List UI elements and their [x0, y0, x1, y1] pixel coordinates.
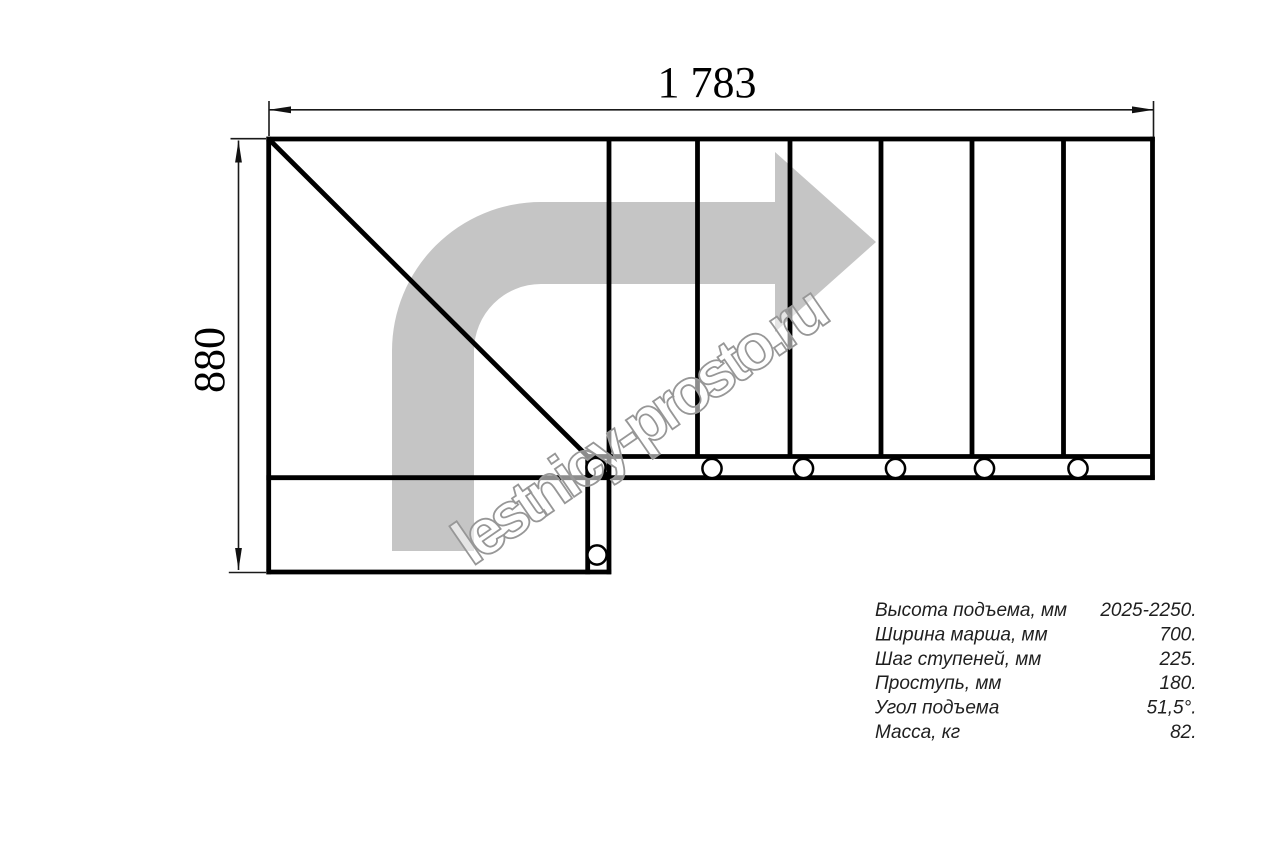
- svg-text:1 783: 1 783: [658, 58, 757, 107]
- svg-text:Ширина марша, мм: Ширина марша, мм: [875, 625, 1048, 646]
- svg-text:Угол подъема: Угол подъема: [874, 698, 999, 719]
- svg-text:880: 880: [185, 327, 234, 393]
- svg-text:700.: 700.: [1160, 625, 1197, 646]
- svg-text:82.: 82.: [1170, 722, 1196, 743]
- svg-text:Масса, кг: Масса, кг: [875, 722, 960, 743]
- svg-text:51,5°.: 51,5°.: [1147, 698, 1197, 719]
- svg-text:180.: 180.: [1160, 673, 1197, 694]
- svg-text:225.: 225.: [1159, 649, 1197, 670]
- svg-text:Проступь, мм: Проступь, мм: [875, 673, 1001, 694]
- svg-text:Шаг ступеней, мм: Шаг ступеней, мм: [875, 649, 1041, 670]
- svg-text:Высота подъема, мм: Высота подъема, мм: [875, 600, 1067, 621]
- svg-text:2025-2250.: 2025-2250.: [1099, 600, 1196, 621]
